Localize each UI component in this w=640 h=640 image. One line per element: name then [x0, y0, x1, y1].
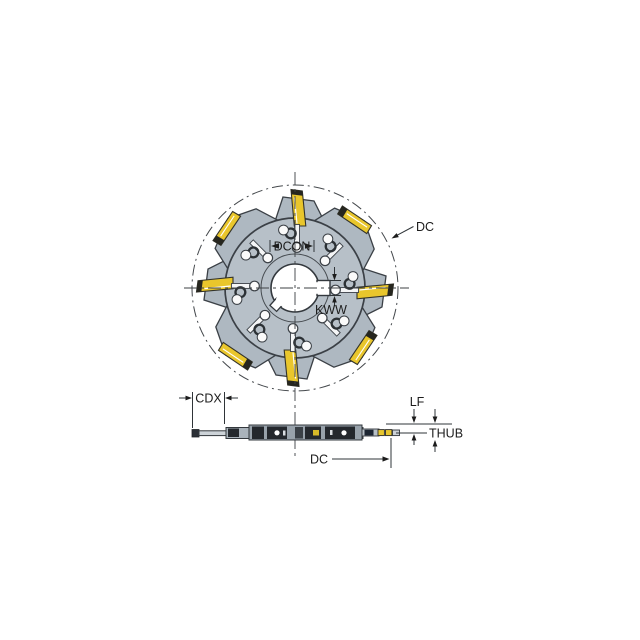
dimension-dc-side: DC [310, 438, 391, 468]
callout-dc: DC [392, 220, 435, 239]
label-cdx: CDX [195, 392, 222, 406]
dimension-cdx: CDX [179, 392, 238, 429]
front-view: DCON KWW DC [184, 172, 434, 456]
label-dc-diameter: DC [416, 220, 434, 234]
label-dcon: DCON [274, 240, 311, 254]
side-insert-right-1 [378, 430, 384, 436]
milling-cutter-drawing: DCON KWW DC [0, 0, 640, 640]
side-insert-right-2 [386, 430, 392, 436]
label-dc-side: DC [310, 453, 328, 467]
side-view-blade [192, 425, 400, 440]
side-insert-mid [313, 430, 319, 436]
label-lf: LF [410, 395, 425, 409]
dimension-lf-thub: LF THUB [386, 395, 463, 452]
side-view: CDX LF THUB DC [179, 392, 463, 469]
drawing-canvas: DCON KWW DC [0, 0, 640, 640]
label-thub: THUB [429, 427, 463, 441]
label-kww: KWW [315, 303, 347, 317]
dimension-dcon: DCON [270, 240, 314, 254]
